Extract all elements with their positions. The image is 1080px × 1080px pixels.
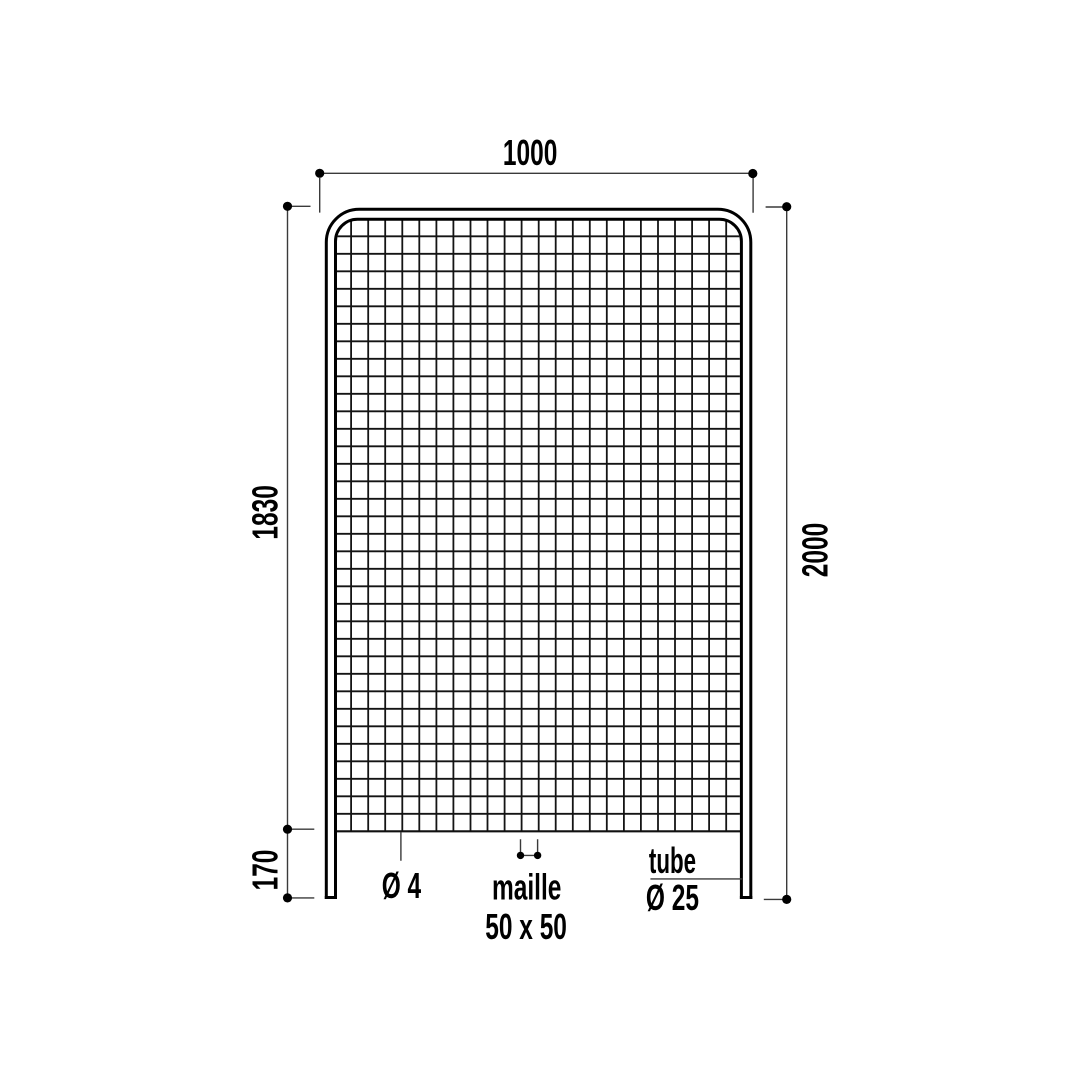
svg-text:50 x 50: 50 x 50	[485, 906, 567, 947]
svg-text:Ø 25: Ø 25	[646, 877, 699, 918]
svg-text:170: 170	[245, 850, 286, 891]
svg-text:Ø 4: Ø 4	[382, 865, 421, 906]
svg-text:1830: 1830	[245, 485, 286, 539]
svg-text:tube: tube	[649, 842, 696, 882]
svg-text:1000: 1000	[503, 132, 557, 173]
svg-text:maille: maille	[492, 867, 561, 908]
svg-text:2000: 2000	[795, 523, 836, 577]
